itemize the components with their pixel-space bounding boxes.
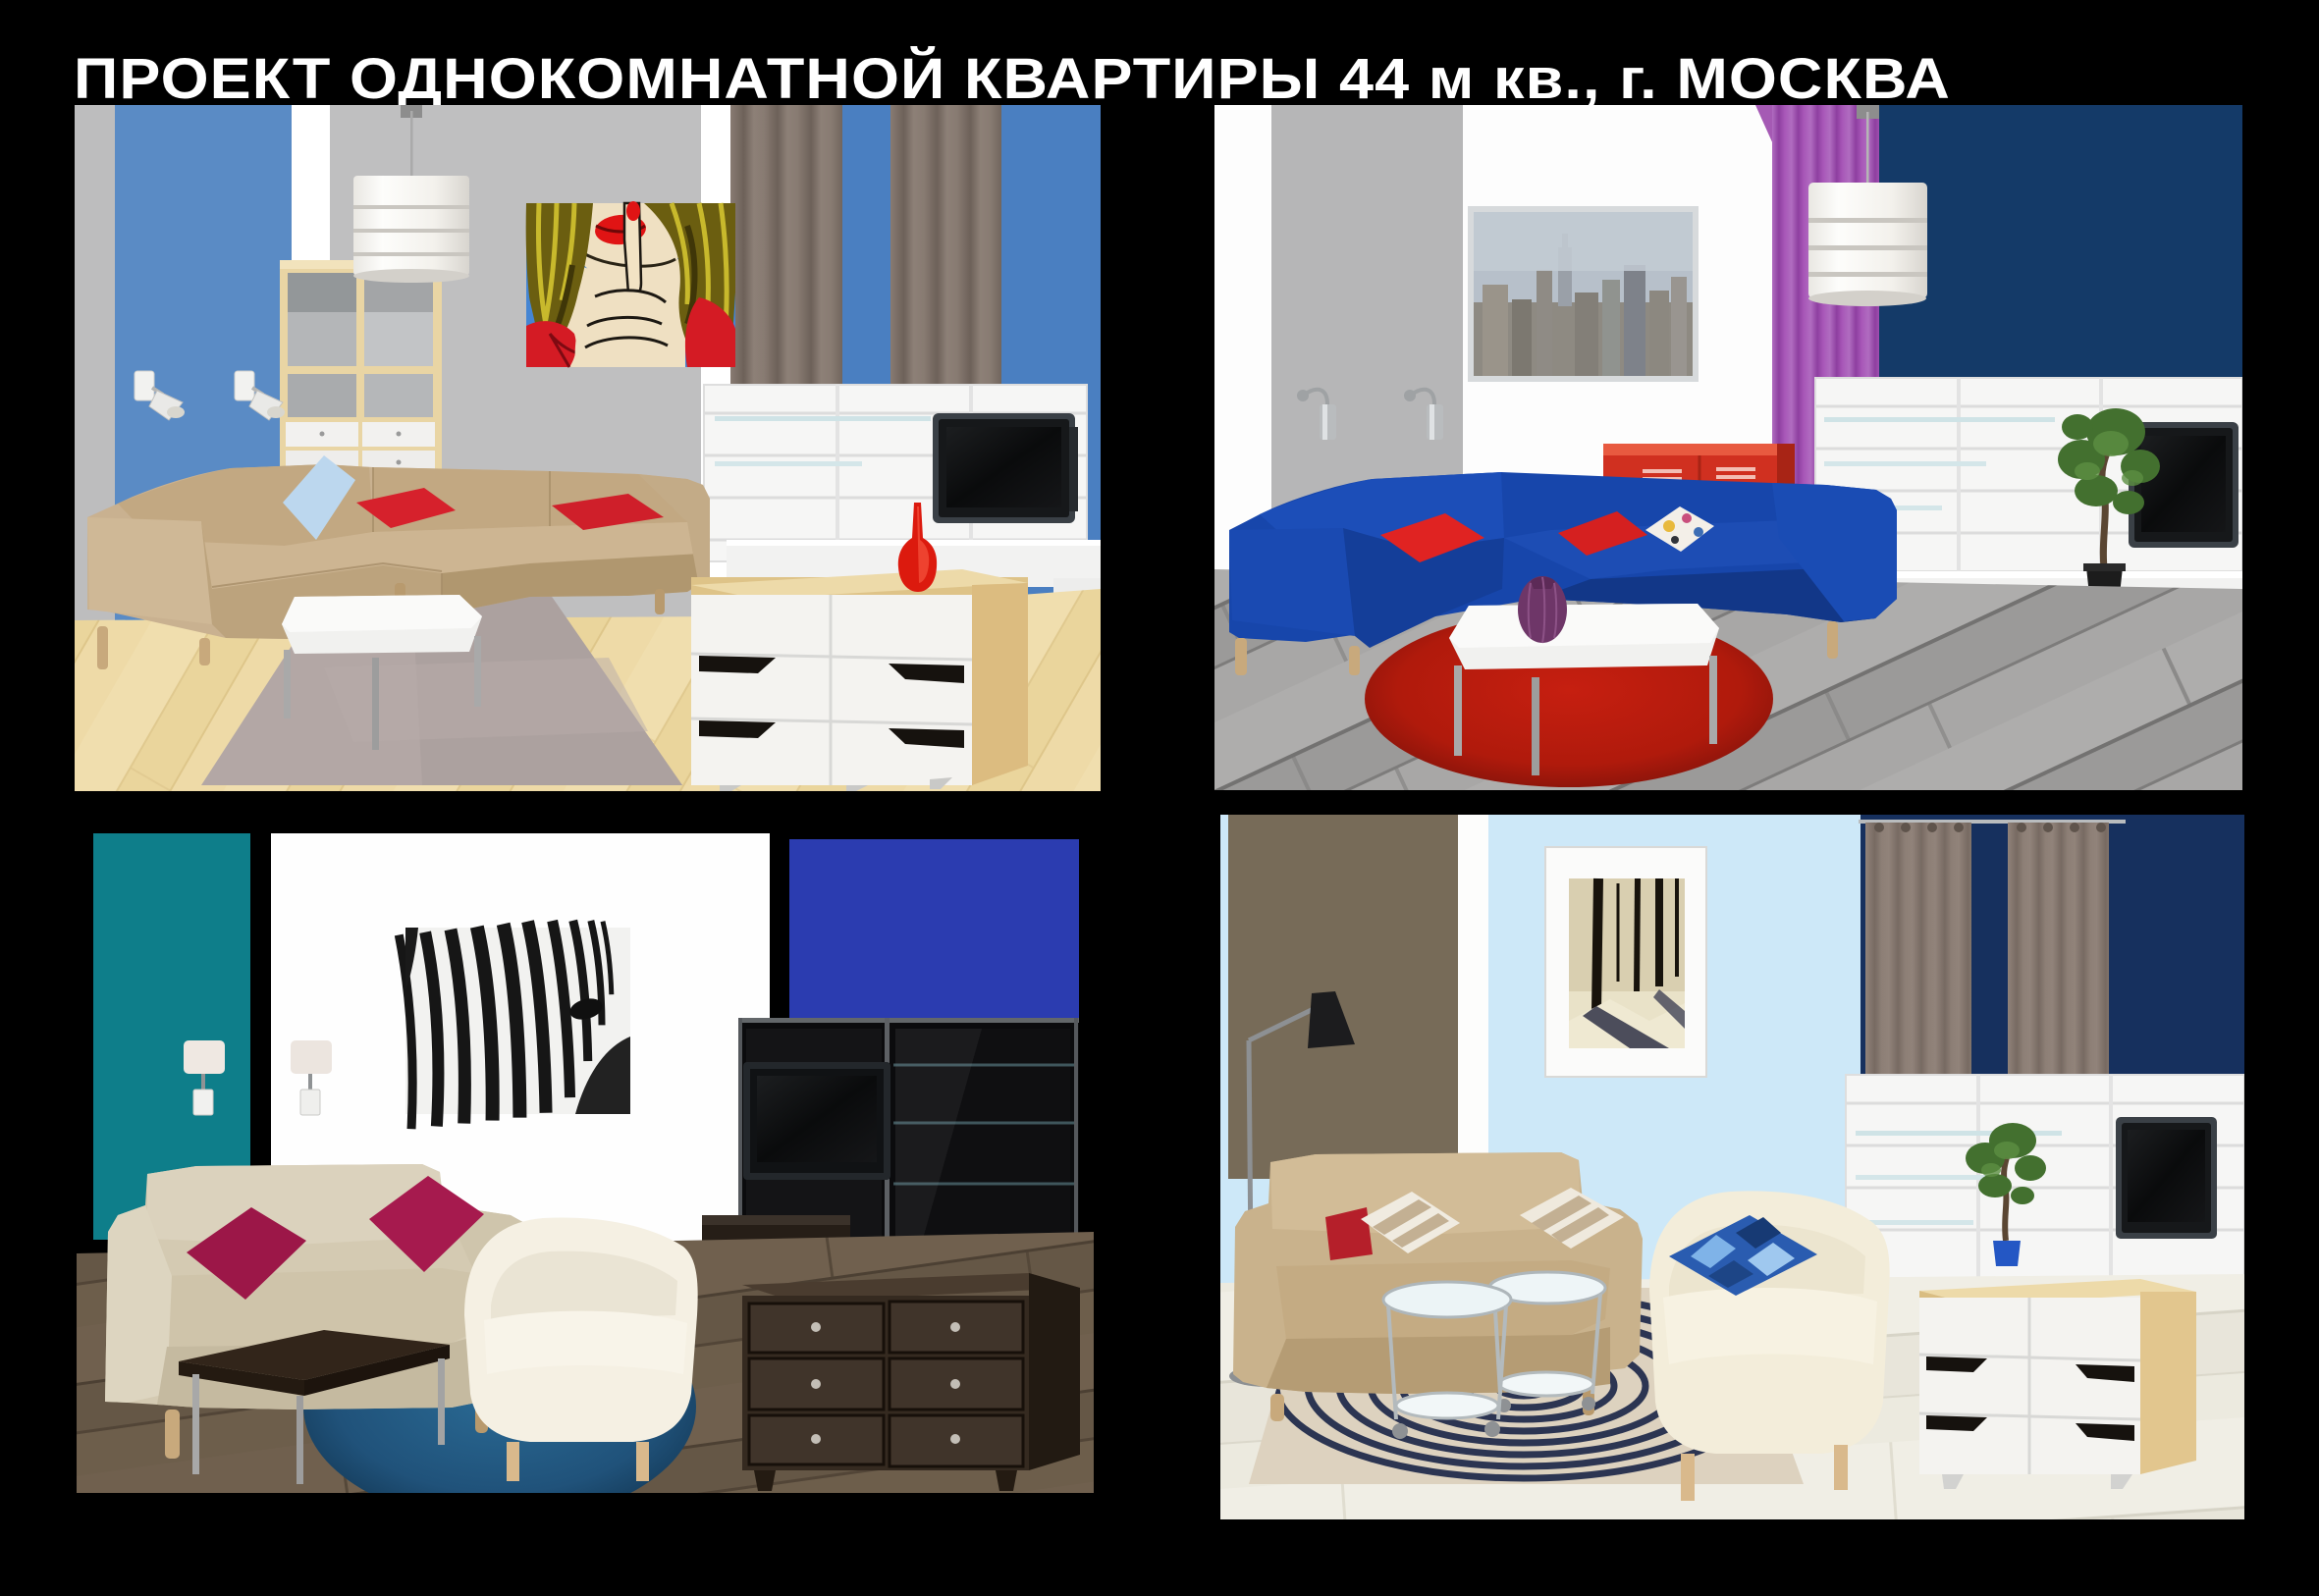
- svg-text:ПРОЕКТ ОДНОКОМНАТНОЙ КВАРТИРЫ: ПРОЕКТ ОДНОКОМНАТНОЙ КВАРТИРЫ 44 м кв., …: [74, 47, 1951, 111]
